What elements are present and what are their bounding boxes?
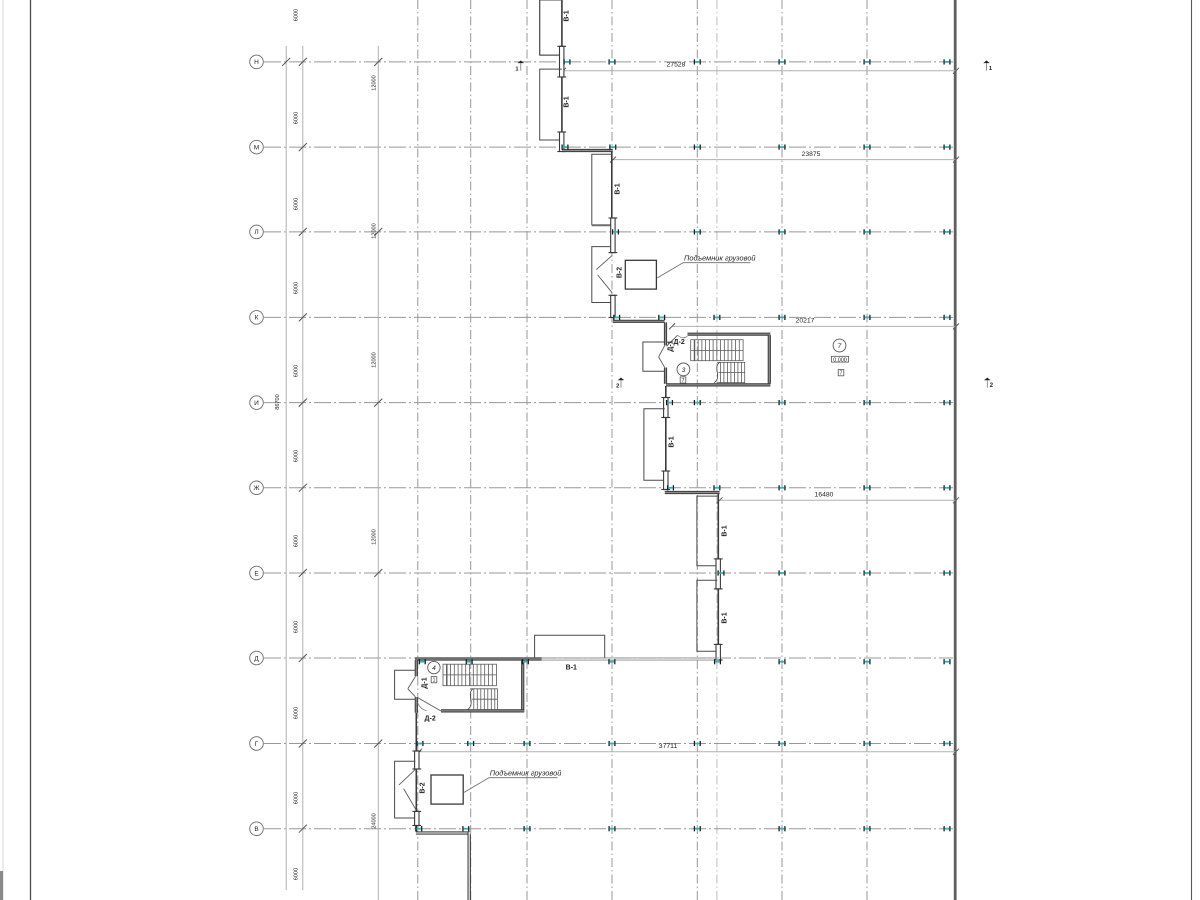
svg-text:12000: 12000 [371,75,377,91]
svg-text:20217: 20217 [796,318,815,325]
svg-text:В-1: В-1 [615,183,622,194]
svg-text:В: В [254,826,258,833]
svg-text:2: 2 [990,382,994,389]
svg-text:27528: 27528 [667,62,686,69]
svg-text:6000: 6000 [294,365,300,377]
svg-text:Д: Д [254,655,259,662]
svg-text:И: И [254,400,259,407]
svg-text:7: 7 [682,378,685,384]
svg-text:6000: 6000 [294,535,300,547]
svg-text:12000: 12000 [371,223,377,239]
svg-text:2: 2 [616,383,619,389]
svg-text:Д-1: Д-1 [422,677,429,688]
svg-text:6000: 6000 [294,792,300,804]
svg-text:Н: Н [254,59,259,66]
svg-text:6000: 6000 [294,621,300,633]
svg-text:Е: Е [254,570,259,577]
svg-text:6000: 6000 [294,450,300,462]
svg-text:6000: 6000 [294,112,300,124]
svg-text:Подъемник грузовой: Подъемник грузовой [684,254,756,263]
svg-text:Д-2: Д-2 [674,339,685,346]
svg-text:М: М [254,144,259,151]
svg-text:4: 4 [432,665,436,672]
svg-text:6000: 6000 [294,198,300,210]
svg-text:0.000: 0.000 [833,357,847,363]
svg-text:3: 3 [682,367,686,374]
svg-text:В-1: В-1 [564,10,571,21]
svg-text:16480: 16480 [815,492,834,499]
svg-text:К: К [255,315,259,322]
svg-text:6000: 6000 [294,282,300,294]
svg-text:37711: 37711 [659,743,678,750]
svg-text:7: 7 [840,371,843,377]
svg-text:В-1: В-1 [566,664,577,671]
svg-text:Г: Г [255,741,259,748]
svg-text:Л: Л [254,229,258,236]
svg-text:1: 1 [433,678,436,684]
svg-text:12000: 12000 [371,529,377,545]
svg-text:В-1: В-1 [722,525,729,536]
svg-text:Ж: Ж [253,485,259,492]
svg-text:6000: 6000 [294,707,300,719]
svg-text:24000: 24000 [371,813,377,829]
svg-text:6000: 6000 [294,9,300,21]
svg-text:В-1: В-1 [722,612,729,623]
svg-text:В-2: В-2 [420,782,427,793]
svg-text:В-1: В-1 [669,436,676,447]
svg-text:6000: 6000 [294,868,300,880]
svg-text:7: 7 [838,343,842,350]
svg-text:23875: 23875 [802,151,821,158]
svg-text:Д-2: Д-2 [425,716,436,723]
svg-text:12000: 12000 [371,352,377,368]
svg-text:86700: 86700 [275,394,281,410]
svg-text:В-2: В-2 [617,267,624,278]
svg-text:В-1: В-1 [564,96,571,107]
svg-text:Подъемник грузовой: Подъемник грузовой [490,769,562,778]
